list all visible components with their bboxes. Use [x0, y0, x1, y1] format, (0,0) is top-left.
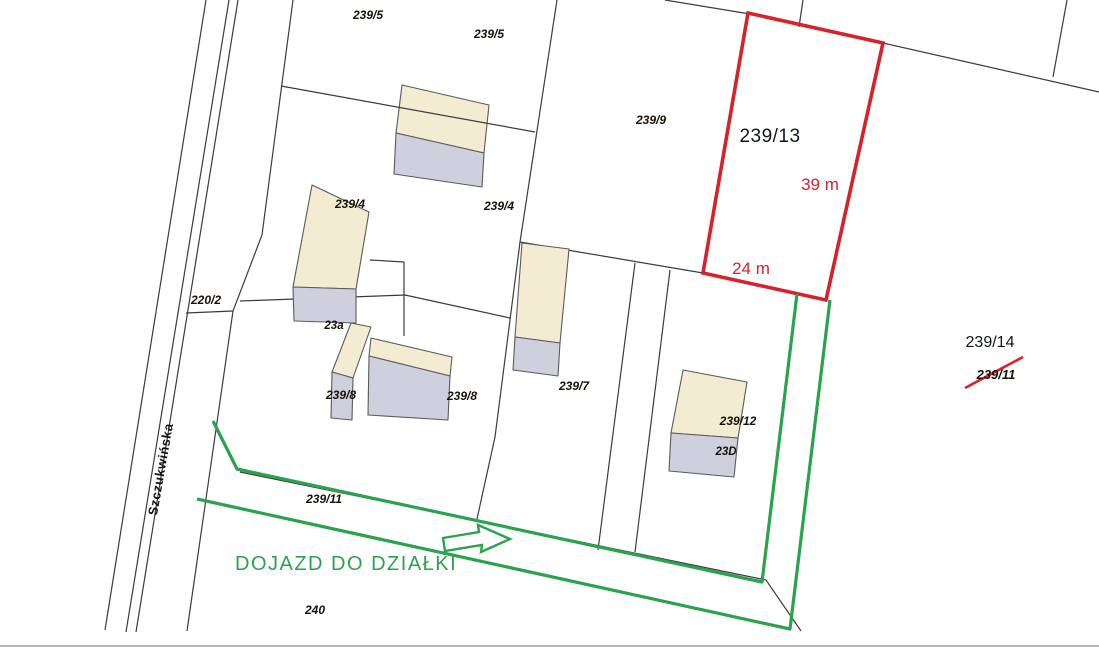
parcel-label-239-5: 239/5 — [473, 27, 504, 41]
parcel-label-239-11: 239/11 — [305, 492, 342, 506]
access-route-caption: DOJAZD DO DZIAŁKI — [235, 553, 457, 575]
parcel-label-239-8: 239/8 — [325, 388, 356, 402]
parcel-label-239-9: 239/9 — [635, 113, 666, 127]
building-roof — [515, 243, 569, 343]
building-front — [513, 337, 560, 376]
parcel-label-239-11-struck: 239/11 — [976, 367, 1016, 382]
parcel-label-240: 240 — [304, 603, 325, 617]
highlighted-parcel-number: 239/13 — [739, 126, 800, 147]
map-canvas: 239/5 239/5 239/9 239/4 239/4 220/2 23a … — [0, 0, 1099, 652]
dimension-front-label: 24 m — [732, 259, 770, 278]
parcel-label-239-12: 239/12 — [719, 414, 757, 428]
building-front — [293, 287, 356, 323]
parcel-label-239-14: 239/14 — [966, 334, 1015, 351]
dimension-side-label: 39 m — [801, 175, 839, 194]
building-label-23D: 23D — [714, 446, 736, 458]
cadastral-map: 239/5 239/5 239/9 239/4 239/4 220/2 23a … — [0, 0, 1099, 652]
building-label-23a: 23a — [323, 320, 344, 332]
parcel-label-239-8: 239/8 — [446, 389, 477, 403]
parcel-label-239-7: 239/7 — [558, 379, 590, 393]
parcel-label-239-4: 239/4 — [483, 199, 514, 213]
parcel-label-239-4: 239/4 — [334, 197, 365, 211]
parcel-label-239-5: 239/5 — [352, 8, 383, 22]
parcel-label-220-2: 220/2 — [190, 293, 221, 307]
